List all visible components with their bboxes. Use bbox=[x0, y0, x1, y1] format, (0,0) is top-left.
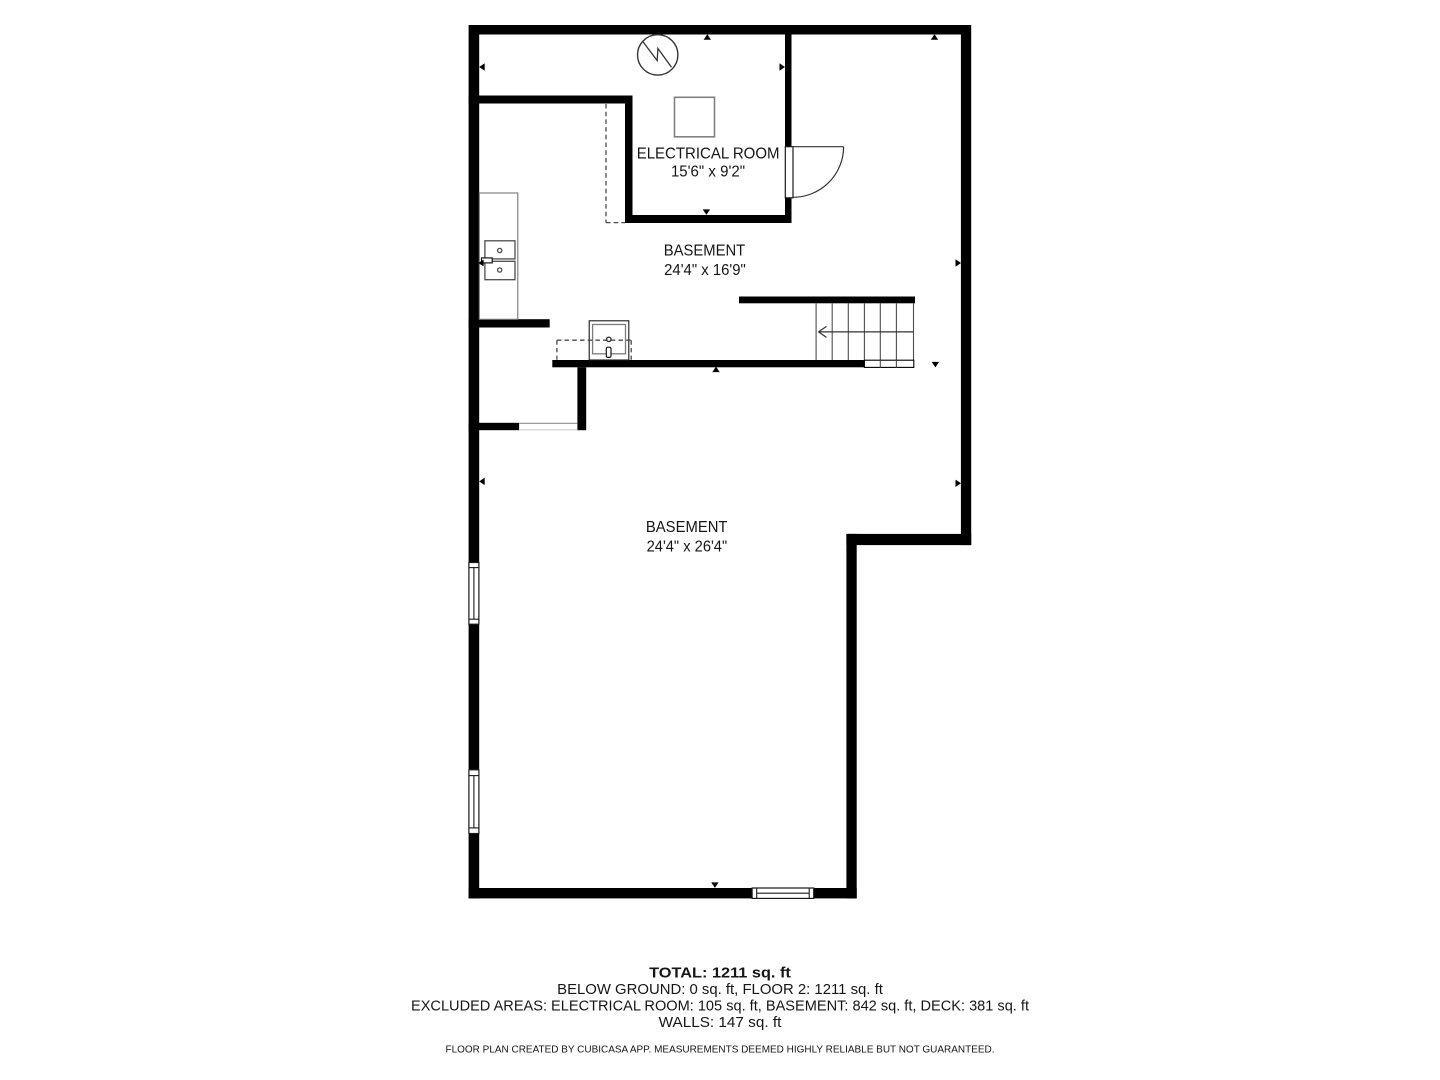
svg-text:TOTAL: 1211 sq. ft: TOTAL: 1211 sq. ft bbox=[649, 965, 791, 982]
svg-text:FLOOR PLAN CREATED BY CUBICASA: FLOOR PLAN CREATED BY CUBICASA APP. MEAS… bbox=[446, 1045, 995, 1056]
svg-text:24'4" x 16'9": 24'4" x 16'9" bbox=[664, 262, 746, 279]
svg-text:24'4" x 26'4": 24'4" x 26'4" bbox=[647, 539, 728, 556]
svg-text:ELECTRICAL ROOM: ELECTRICAL ROOM bbox=[637, 145, 780, 162]
svg-text:BELOW GROUND: 0 sq. ft, FLOOR: BELOW GROUND: 0 sq. ft, FLOOR 2: 1211 sq… bbox=[557, 981, 884, 998]
svg-text:15'6" x 9'2": 15'6" x 9'2" bbox=[671, 164, 745, 181]
svg-text:BASEMENT: BASEMENT bbox=[664, 242, 746, 259]
svg-text:EXCLUDED AREAS: ELECTRICAL ROO: EXCLUDED AREAS: ELECTRICAL ROOM: 105 sq.… bbox=[411, 997, 1030, 1014]
svg-text:BASEMENT: BASEMENT bbox=[646, 519, 728, 536]
svg-text:WALLS: 147 sq. ft: WALLS: 147 sq. ft bbox=[659, 1014, 783, 1031]
